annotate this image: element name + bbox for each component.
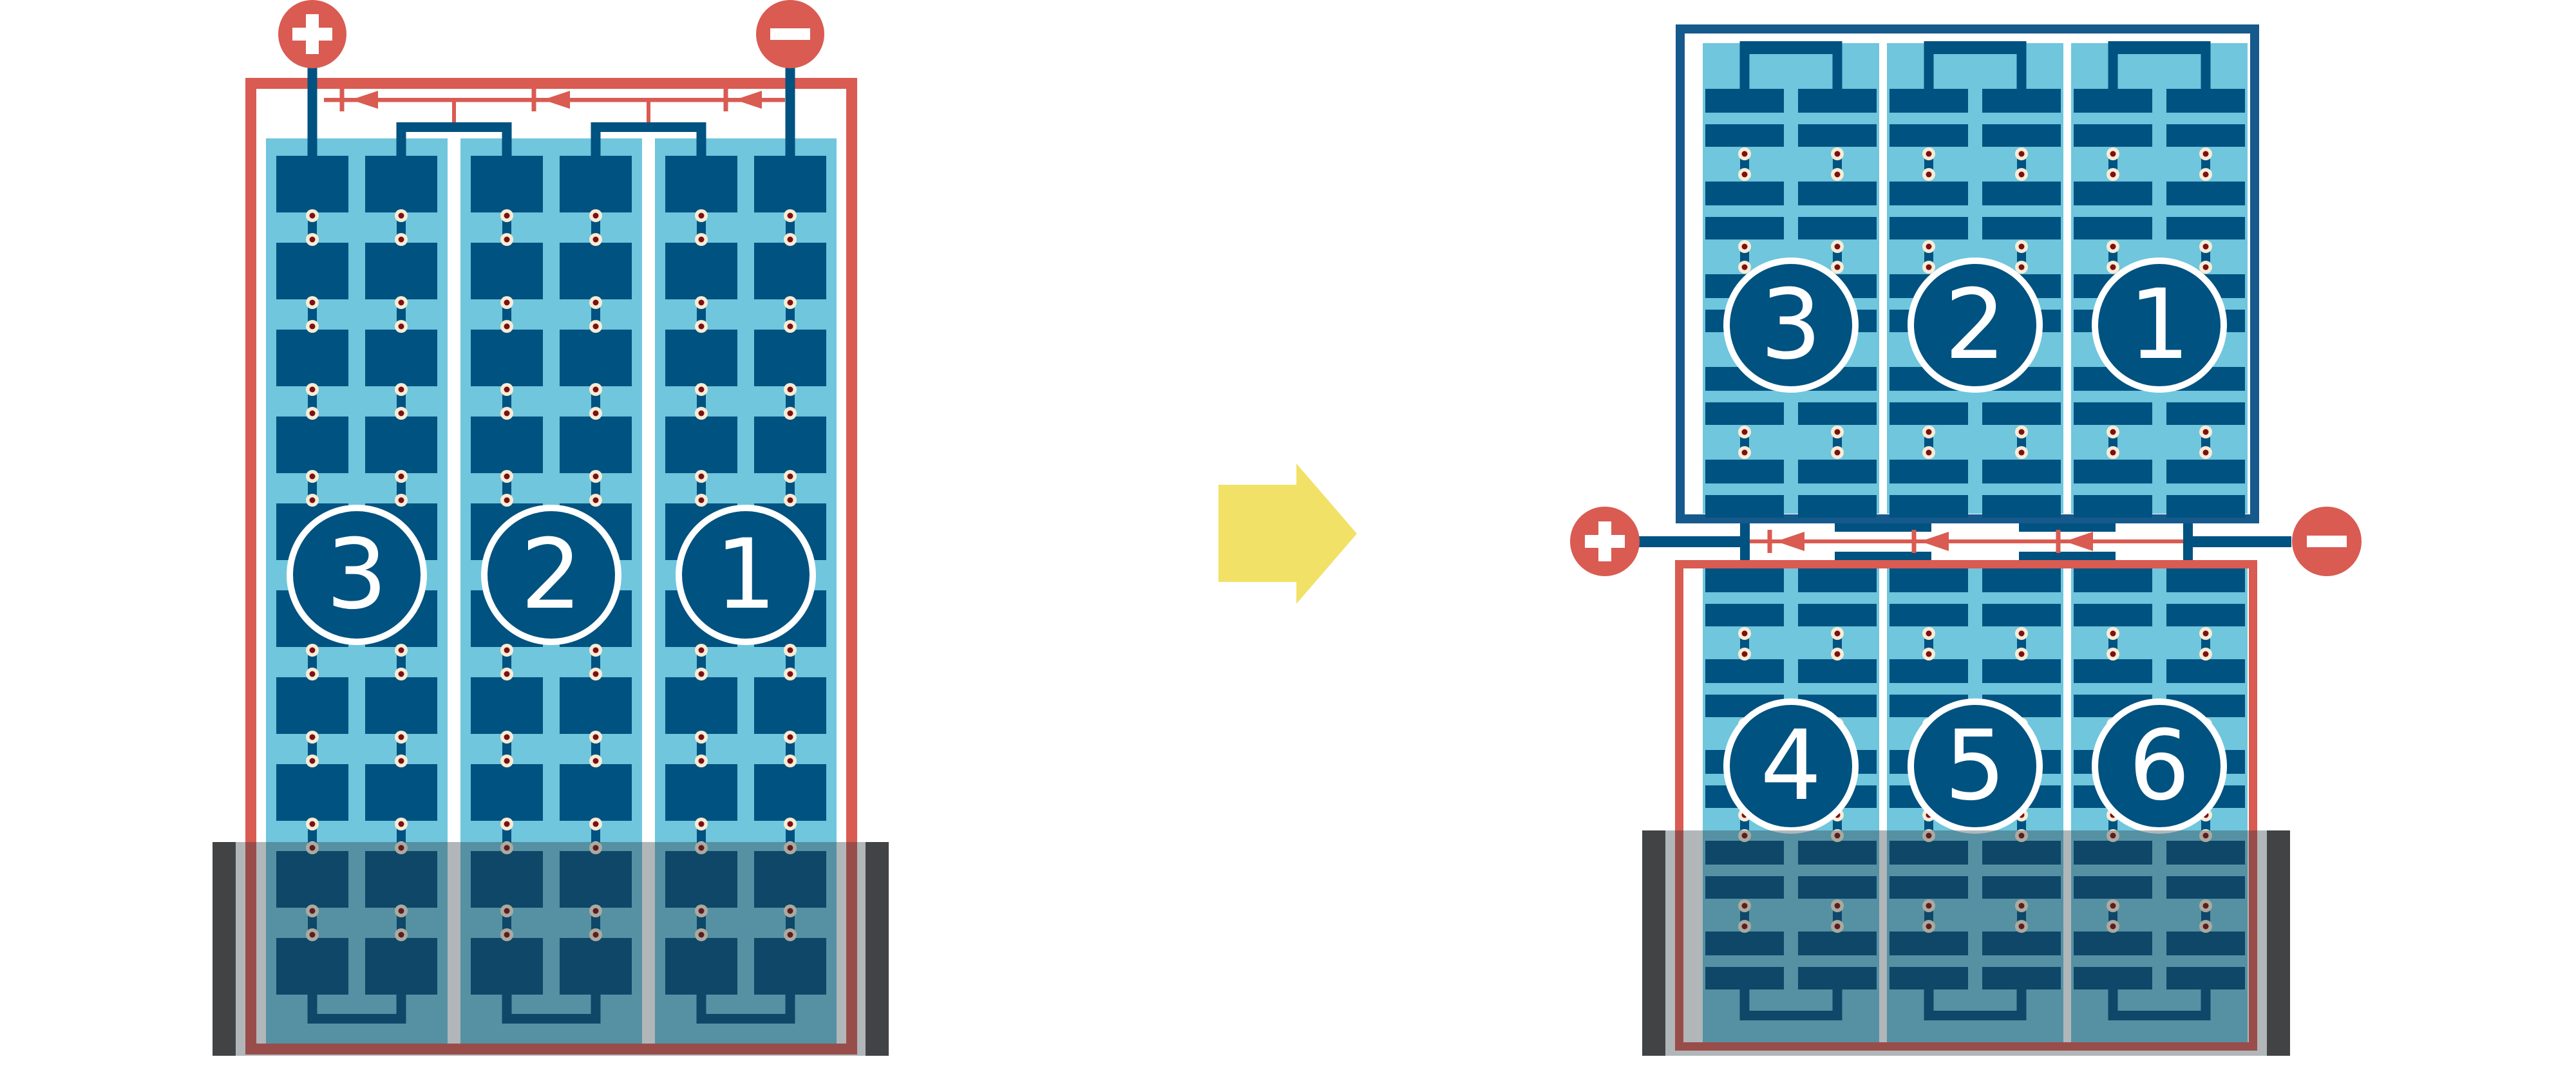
plate [1705,402,1784,425]
plate [471,156,543,212]
rivet-dot-core [2019,172,2025,178]
rivet-dot-core [399,648,404,653]
rivet-dot-core [310,735,316,740]
rivet-dot-core [399,758,404,764]
rivet-dot-core [2019,429,2025,435]
rivet-dot-core [2110,244,2116,250]
rivet-dot-core [593,213,599,219]
rivet-dot-core [310,387,316,393]
rivet-dot-core [1926,450,1932,456]
rivet-dot-core [310,758,316,764]
plate [471,764,543,821]
plate [2166,89,2245,113]
plate [276,764,348,821]
rivet-dot-core [310,474,316,480]
plus-icon [1598,521,1611,561]
cell-number: 3 [326,519,387,631]
plate [1798,182,1877,205]
rivet-dot-core [699,237,705,243]
plate [754,156,826,212]
rivet-dot-core [310,324,316,330]
rivet-dot-core [699,474,705,480]
plate [2074,182,2152,205]
rivet-dot-core [593,237,599,243]
diagram-canvas: 321321456 [0,0,2576,1068]
plate [1982,460,2061,483]
plate [471,330,543,386]
rivet-dot-core [504,411,510,417]
plate [365,243,437,299]
tank-end-cap [866,842,889,1056]
wire-tick [1912,530,1917,553]
rivet-dot-core [1742,450,1748,456]
rivet-dot-core [788,821,793,827]
negative-bus-bar [2193,536,2291,547]
rivet-dot-core [1742,151,1748,157]
cell-number: 4 [1760,710,1821,822]
cell-number: 1 [715,519,776,631]
rivet-dot-core [1835,429,1841,435]
plate [2166,460,2245,483]
plate [1982,89,2061,113]
plate [276,330,348,386]
rivet-dot-core [2203,265,2209,270]
rivet-dot-core [2110,265,2116,270]
plate [665,330,737,386]
rivet-dot-core [1835,450,1841,456]
rivet-dot-core [1742,429,1748,435]
positive-post [308,67,317,156]
rivet-dot-core [310,671,316,677]
rivet-dot-core [1835,631,1841,637]
rivet-dot-core [2203,244,2209,250]
rivet-dot-core [788,411,793,417]
minus-icon [770,28,810,40]
wire-tick [2056,530,2061,553]
rivet-dot-core [788,648,793,653]
rivet-dot-core [788,237,793,243]
rivet-dot-core [788,387,793,393]
plate [1889,89,1968,113]
rivet-dot-core [504,758,510,764]
rivet-dot-core [699,213,705,219]
cell-number: 3 [1760,269,1821,381]
cell-number: 2 [520,519,582,631]
rivet-dot-core [504,671,510,677]
plate [471,417,543,473]
plate [754,330,826,386]
plate [276,417,348,473]
rivet-dot-core [2019,265,2025,270]
rivet-dot-core [1926,651,1932,657]
plate [2074,402,2152,425]
plate [1982,124,2061,147]
rivet-dot-core [2203,151,2209,157]
rivet-dot-core [2110,631,2116,637]
plate [276,156,348,212]
plate [1705,182,1784,205]
rivet-dot-core [699,498,705,503]
rivet-dot-core [2019,450,2025,456]
plate [560,677,632,734]
wire-tick [1768,530,1772,553]
rivet-dot-core [788,671,793,677]
rivet-dot-core [699,671,705,677]
plate [2166,217,2245,239]
plate [1798,402,1877,425]
plate [754,677,826,734]
plate [2074,89,2152,113]
top-section: 321 [1676,24,2259,523]
plate [2166,495,2245,518]
rivet-dot-core [1742,244,1748,250]
electrolyte-tank [213,842,889,1056]
plate [1798,217,1877,239]
tank-end-cap [1642,830,1665,1056]
plate [1798,89,1877,113]
diagram-svg: 321321456 [0,0,2576,1068]
junction-post [2183,523,2193,560]
plate [1889,495,1968,518]
rivet-dot-core [2203,450,2209,456]
plate [1705,89,1784,113]
rivet-dot-core [699,758,705,764]
rivet-dot-core [593,735,599,740]
plate [2166,568,2245,592]
plate [2074,568,2152,592]
plate [1889,124,1968,147]
wire-tick [724,88,728,111]
plate [1798,659,1877,683]
left-battery-unit: 321 [213,0,889,1056]
rivet-dot-core [504,213,510,219]
plate [1982,568,2061,592]
rivet-dot-core [593,387,599,393]
rivet-dot-core [504,648,510,653]
plate [560,417,632,473]
rivet-dot-core [1835,651,1841,657]
rivet-dot-core [310,237,316,243]
rivet-dot-core [1926,244,1932,250]
plate [1982,217,2061,239]
rivet-dot-core [2019,631,2025,637]
rivet-dot-core [2110,151,2116,157]
rivet-dot-core [699,324,705,330]
rivet-dot-core [1742,631,1748,637]
plate [754,417,826,473]
battery-diagram: 321321456 [0,0,2576,1068]
plate [1798,124,1877,147]
rivet-dot-core [788,758,793,764]
wire [1750,539,2183,543]
rivet-dot-core [1835,172,1841,178]
rivet-dot-core [1926,265,1932,270]
rivet-dot-core [1835,151,1841,157]
plate [1889,460,1968,483]
plate [754,764,826,821]
plate [1982,402,2061,425]
plate [1889,568,1968,592]
rivet-dot-core [2110,429,2116,435]
plate [1889,402,1968,425]
plate [1982,495,2061,518]
rivet-dot-core [399,213,404,219]
cell-number: 2 [1944,269,2005,381]
plate [1982,182,2061,205]
plate [560,243,632,299]
plate [1982,659,2061,683]
rivet-dot-core [504,735,510,740]
plate [2074,659,2152,683]
rivet-dot-core [1835,244,1841,250]
plate [754,243,826,299]
negative-terminal [2292,507,2362,576]
plate [1705,495,1784,518]
rivet-dot-core [788,213,793,219]
rivet-dot-core [699,300,705,306]
rivet-dot-core [1742,651,1748,657]
plate [665,417,737,473]
plate [560,156,632,212]
rivet-dot-core [504,300,510,306]
rivet-dot-core [2203,631,2209,637]
minus-icon [2307,536,2347,547]
cell-number: 1 [2128,269,2190,381]
plate [365,417,437,473]
rivet-dot-core [2019,151,2025,157]
plate [276,677,348,734]
rivet-dot-core [399,735,404,740]
cell-number: 5 [1944,710,2005,822]
wire-tick [340,88,345,111]
plate [560,330,632,386]
rivet-dot-core [1742,172,1748,178]
rivet-dot-core [593,300,599,306]
rivet-dot-core [399,300,404,306]
plate [1798,604,1877,626]
tank-end-cap [213,842,236,1056]
junction-post [1740,523,1750,560]
plate [1705,659,1784,683]
plate [1889,182,1968,205]
tank-end-cap [2267,830,2290,1056]
rivet-dot-core [399,387,404,393]
rivet-dot-core [1926,429,1932,435]
rivet-dot-core [2110,450,2116,456]
plate [471,243,543,299]
rivet-dot-core [1926,172,1932,178]
cell-number: 6 [2128,710,2190,822]
rivet-dot-core [593,821,599,827]
plate [365,330,437,386]
rivet-dot-core [593,474,599,480]
plate [1705,568,1784,592]
negative-terminal [756,0,824,68]
plate [1889,604,1968,626]
rivet-dot-core [399,411,404,417]
rivet-dot-core [399,237,404,243]
plate [665,677,737,734]
rivet-dot-core [2110,172,2116,178]
plate [276,243,348,299]
rivet-dot-core [699,735,705,740]
rivet-dot-core [504,324,510,330]
rivet-dot-core [699,387,705,393]
plate [365,677,437,734]
plate [665,156,737,212]
plate [2166,604,2245,626]
rivet-dot-core [1835,265,1841,270]
rivet-dot-core [788,474,793,480]
plate [560,764,632,821]
rivet-dot-core [593,324,599,330]
rivet-dot-core [504,387,510,393]
plate [1889,217,1968,239]
rivet-dot-core [1926,631,1932,637]
plate [2166,124,2245,147]
rivet-dot-core [310,821,316,827]
rivet-dot-core [310,300,316,306]
plate [2074,460,2152,483]
rivet-dot-core [2203,651,2209,657]
rivet-dot-core [593,648,599,653]
wire-drop [647,102,650,122]
rivet-dot-core [1926,151,1932,157]
plate [2166,659,2245,683]
plate [1798,495,1877,518]
rivet-dot-core [310,648,316,653]
plate [1798,460,1877,483]
plate [365,156,437,212]
bottom-section: 456 [1642,560,2290,1056]
positive-terminal [278,0,346,68]
plate [1705,604,1784,626]
wire-tick [532,88,536,111]
rivet-dot-core [504,821,510,827]
junction-tab [1835,523,1931,532]
rivet-dot-core [399,671,404,677]
rivet-dot-core [399,474,404,480]
rivet-dot-core [788,735,793,740]
rivet-dot-core [593,758,599,764]
plate [2074,217,2152,239]
plate [2166,402,2245,425]
positive-terminal [1570,507,1640,576]
plate [2074,495,2152,518]
plus-icon [306,14,319,54]
rivet-dot-core [310,411,316,417]
rivet-dot-core [699,411,705,417]
plate [1705,217,1784,239]
rivet-dot-core [788,300,793,306]
junction-tab [2019,552,2116,560]
electrolyte-tank [1642,830,2290,1056]
rivet-dot-core [504,474,510,480]
rivet-dot-core [593,411,599,417]
rivet-dot-core [2019,651,2025,657]
rivet-dot-core [699,648,705,653]
rivet-dot-core [2110,651,2116,657]
plate [471,677,543,734]
rivet-dot-core [699,821,705,827]
junction-tab [2019,523,2116,532]
negative-post [786,67,795,156]
wire-drop [452,102,456,122]
plate [665,764,737,821]
plate [2074,604,2152,626]
rivet-dot-core [1742,265,1748,270]
plate [1705,460,1784,483]
positive-bus-bar [1639,536,1740,547]
rivet-dot-core [788,498,793,503]
rivet-dot-core [399,324,404,330]
rivet-dot-core [399,498,404,503]
rivet-dot-core [504,498,510,503]
plate [365,764,437,821]
rivet-dot-core [310,498,316,503]
plate [1889,659,1968,683]
plate [1982,604,2061,626]
plate [2074,124,2152,147]
rivet-dot-core [593,498,599,503]
rivet-dot-core [2203,429,2209,435]
rivet-dot-core [593,671,599,677]
rivet-dot-core [788,324,793,330]
rivet-dot-core [399,821,404,827]
rivet-dot-core [2019,244,2025,250]
plate [2166,182,2245,205]
plate [665,243,737,299]
rivet-dot-core [504,237,510,243]
plate [1798,568,1877,592]
rivet-dot-core [310,213,316,219]
plate [1705,124,1784,147]
rivet-dot-core [2203,172,2209,178]
junction-tab [1835,552,1931,560]
